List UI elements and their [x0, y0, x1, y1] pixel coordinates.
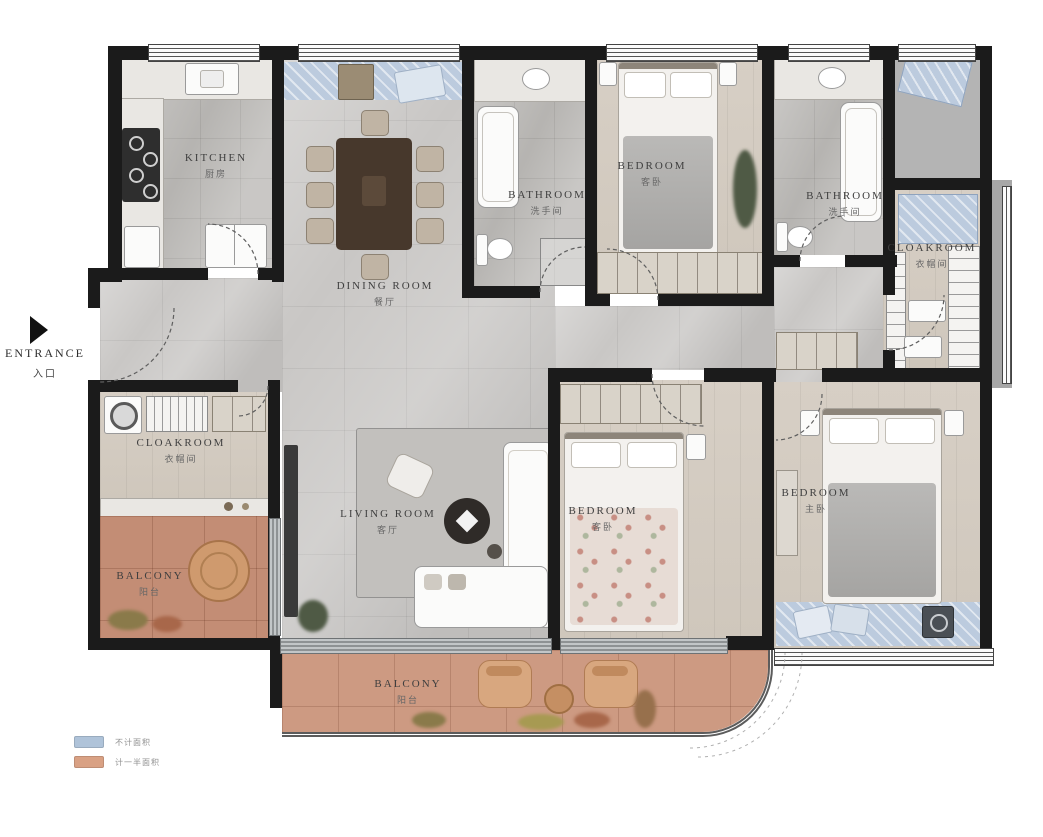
legend-item-no-area: 不计面积 [74, 736, 151, 748]
stove-burner [129, 136, 144, 151]
balcony-plant [412, 712, 446, 728]
legend-label-no-area: 不计面积 [115, 737, 151, 748]
dining-chair [306, 218, 334, 244]
label-kitchen-en: KITCHEN [185, 152, 247, 164]
nightstand [599, 62, 617, 86]
label-bedroom-top: BEDROOM 客卧 [617, 160, 686, 188]
label-bedroom-master-en: BEDROOM [781, 487, 850, 499]
dining-chair [306, 146, 334, 172]
floorplan-canvas: KITCHEN 厨房 DINING ROOM 餐厅 BATHROOM 洗手间 B… [0, 0, 1043, 837]
wall-left-kitchen [108, 46, 122, 282]
headboard [619, 63, 717, 69]
wall-bathroom-right-bottom-a [762, 255, 800, 267]
pillow [829, 418, 879, 444]
corridor-mid-floor [555, 306, 774, 370]
label-bathroom-right-zh: 洗手间 [806, 205, 884, 218]
wall-platform-bottom [895, 178, 992, 190]
label-living-en: LIVING ROOM [340, 508, 436, 520]
label-cloakroom-left-zh: 衣帽间 [137, 452, 226, 465]
window-platform [898, 44, 976, 62]
wall-mid-horizontal-a [548, 368, 652, 382]
label-bathroom-right-en: BATHROOM [806, 190, 884, 202]
dining-chair [361, 254, 389, 280]
window-master-bottom [774, 648, 994, 666]
label-cloakroom-right-en: CLOAKROOM [888, 242, 977, 254]
bathroom-right-sink [818, 67, 846, 89]
label-bedroom-top-zh: 客卧 [617, 175, 686, 188]
wall-mid-horizontal-c [822, 368, 992, 382]
wall-balcony-left-stub [270, 650, 282, 708]
wall-left-lower [88, 382, 100, 650]
wall-bmid-bottom-stub [726, 636, 774, 650]
cloakroom-left-bookshelf [146, 396, 208, 432]
label-bathroom-left-en: BATHROOM [508, 189, 586, 201]
stove-burner [143, 152, 158, 167]
counter-decor [242, 503, 249, 510]
bedroom-top-plant [733, 150, 757, 228]
bay-cushion [830, 603, 870, 636]
label-living-zh: 客厅 [340, 523, 436, 536]
label-dining: DINING ROOM 餐厅 [337, 280, 434, 308]
bedroom-top-wardrobe [597, 252, 764, 294]
wall-left-step [88, 268, 122, 282]
bedroom-middle-wardrobe [560, 384, 702, 424]
window-bedroom-middle-bottom [560, 638, 728, 654]
wall-kitchen-bottom-a [120, 268, 208, 280]
label-bedroom-middle-zh: 客卧 [568, 520, 637, 533]
pillow [571, 442, 621, 468]
label-kitchen-zh: 厨房 [185, 167, 247, 180]
label-balcony-left-zh: 阳台 [116, 585, 183, 598]
label-balcony-bottom-zh: 阳台 [374, 693, 441, 706]
folded-linen-stack [904, 336, 942, 358]
label-cloakroom-left-en: CLOAKROOM [137, 437, 226, 449]
label-dining-zh: 餐厅 [337, 295, 434, 308]
label-bedroom-master: BEDROOM 主卧 [781, 487, 850, 515]
label-balcony-left: BALCONY 阳台 [116, 570, 183, 598]
wall-bedroom-middle-right [762, 368, 774, 650]
label-bathroom-left: BATHROOM 洗手间 [508, 189, 586, 217]
bay-decor-box [338, 64, 374, 100]
nightstand [800, 410, 820, 436]
label-cloakroom-left: CLOAKROOM 衣帽间 [137, 437, 226, 465]
balcony-plant [518, 714, 564, 730]
stove-burner [143, 184, 158, 199]
window-dining [298, 44, 460, 62]
bathroom-right-toilet [787, 226, 813, 248]
wall-bedroom-middle-left [548, 368, 560, 650]
pillow [627, 442, 677, 468]
balcony-chair-cushion [486, 666, 522, 676]
washing-machine-drum [110, 402, 138, 430]
label-cloakroom-right-zh: 衣帽间 [888, 257, 977, 270]
wall-kitchen-bottom-b [258, 268, 284, 280]
duvet [623, 136, 713, 249]
label-bedroom-middle: BEDROOM 客卧 [568, 505, 637, 533]
label-bedroom-top-en: BEDROOM [617, 160, 686, 172]
balcony-left-plant [152, 616, 182, 632]
dining-chair [416, 218, 444, 244]
wall-bedroom-top-bottom-a [585, 294, 610, 306]
blue-panel-cloakroom [898, 194, 978, 244]
window-bedroom-top [606, 44, 758, 62]
legend-swatch-no-area [74, 736, 104, 748]
kitchen-cart [124, 226, 160, 268]
bay-decor-ring [930, 614, 948, 632]
entrance-label-zh: 入口 [4, 365, 86, 380]
nightstand [944, 410, 964, 436]
label-bedroom-master-zh: 主卧 [781, 502, 850, 515]
dining-chair [416, 146, 444, 172]
wall-cloakroom-left-top [88, 380, 238, 392]
slider-living-balcony [280, 638, 552, 654]
label-living: LIVING ROOM 客厅 [340, 508, 436, 536]
kitchen-fridge [205, 224, 267, 268]
dining-chair [416, 182, 444, 208]
pillow [885, 418, 935, 444]
label-balcony-left-en: BALCONY [116, 570, 183, 582]
entrance-arrow-icon [30, 316, 48, 344]
legend-item-half-area: 计一半面积 [74, 756, 160, 768]
headboard [823, 409, 941, 415]
bathroom-left-sink [522, 68, 550, 90]
pillow [624, 72, 666, 98]
wall-bathroom-left-a [462, 46, 474, 298]
legend-label-half-area: 计一半面积 [115, 757, 160, 768]
dining-centerpiece [362, 176, 386, 206]
window-right-ledge [1002, 186, 1012, 384]
corridor-cabinet [776, 332, 858, 370]
wall-bathroom-left-bottom [462, 286, 540, 298]
pillow [670, 72, 712, 98]
slider-left-balcony [269, 518, 281, 636]
label-bedroom-middle-en: BEDROOM [568, 505, 637, 517]
bathroom-left-shower [540, 238, 586, 286]
dining-chair [361, 110, 389, 136]
balcony-bottom-shell [282, 650, 773, 737]
balcony-left-plant [108, 610, 148, 630]
window-kitchen [148, 44, 260, 62]
balcony-chair-cushion [592, 666, 628, 676]
folded-linen-stack [908, 300, 946, 322]
balcony-plant [574, 712, 610, 728]
wall-bottom-left [88, 638, 282, 650]
legend-swatch-half-area [74, 756, 104, 768]
wall-bedroom-top-left [585, 46, 597, 298]
living-plant [298, 600, 328, 632]
stove-burner [129, 168, 144, 183]
wall-bedroom-top-right [762, 46, 774, 306]
rattan-chair-inner [200, 552, 238, 590]
label-balcony-bottom-en: BALCONY [374, 678, 441, 690]
kitchen-sink-basin [200, 70, 224, 88]
wall-bedroom-top-bottom-b [658, 294, 774, 306]
label-bathroom-right: BATHROOM 洗手间 [806, 190, 884, 218]
bathroom-left-toilet [487, 238, 513, 260]
cloakroom-left-cabinet [212, 396, 266, 432]
label-bathroom-left-zh: 洗手间 [508, 204, 586, 217]
entrance-label-en: ENTRANCE [4, 346, 86, 361]
counter-decor [224, 502, 233, 511]
label-dining-en: DINING ROOM [337, 280, 434, 292]
sofa-pillow [448, 574, 466, 590]
nightstand [719, 62, 737, 86]
balcony-round-table [544, 684, 574, 714]
dining-chair [306, 182, 334, 208]
tv-console [284, 445, 298, 617]
wall-left-above-entry [88, 282, 100, 308]
entrance-label: ENTRANCE 入口 [4, 346, 86, 380]
balcony-plant [634, 690, 656, 728]
label-cloakroom-right: CLOAKROOM 衣帽间 [888, 242, 977, 270]
side-table [487, 544, 502, 559]
window-bathroom-right [788, 44, 870, 62]
sofa-pillow [424, 574, 442, 590]
wall-right [980, 46, 992, 650]
label-balcony-bottom: BALCONY 阳台 [374, 678, 441, 706]
wall-kitchen-right [272, 46, 284, 282]
headboard [565, 433, 683, 439]
hallway-floor [100, 278, 282, 392]
nightstand [686, 434, 706, 460]
label-kitchen: KITCHEN 厨房 [185, 152, 247, 180]
fridge-divider [234, 225, 235, 265]
bedroom-top-bed [618, 62, 718, 256]
